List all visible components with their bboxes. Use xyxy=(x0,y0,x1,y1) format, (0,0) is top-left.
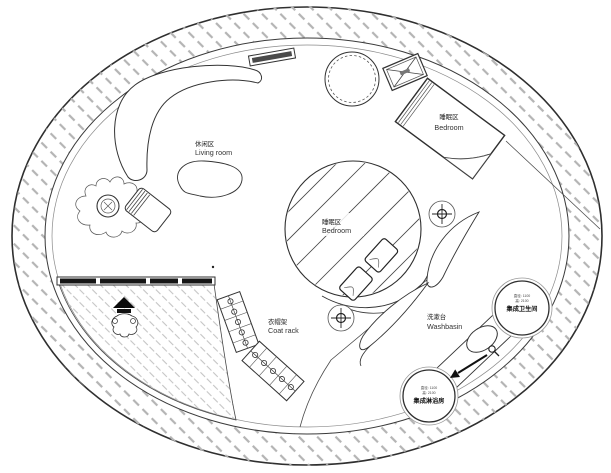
stray-dot xyxy=(212,266,214,268)
bedroom-center-label-zh: 睡眠区 xyxy=(322,218,342,226)
living-room-label-zh: 休闲区 xyxy=(195,139,215,148)
floor-plan-canvas: 休闲区 Living room 睡眠区 Bedroom xyxy=(0,0,611,473)
floor-plan-drawing: 休闲区 Living room 睡眠区 Bedroom xyxy=(0,0,611,473)
column-symbol-icon xyxy=(429,201,455,227)
bedroom-upper-label-zh: 睡眠区 xyxy=(439,113,459,121)
round-rug xyxy=(325,52,379,106)
column-symbol-icon xyxy=(328,305,354,331)
shower-pod-dim2: 高: 2100 xyxy=(422,390,435,395)
washbasin-label-zh: 洗漱台 xyxy=(427,312,446,321)
coat-rack-label-en: Coat rack xyxy=(268,326,299,335)
living-room-label-en: Living room xyxy=(195,148,232,157)
bedroom-center-label-en: Bedroom xyxy=(322,226,351,235)
bathroom-pod-name: 集成卫生间 xyxy=(506,305,538,313)
bathroom-pod: 直径: 1100 高: 2100 集成卫生间 xyxy=(492,278,552,338)
shower-pod-dim1: 直径: 1100 xyxy=(421,385,438,390)
bedroom-upper-label-en: Bedroom xyxy=(434,123,463,132)
straight-wall xyxy=(57,277,215,285)
bathroom-pod-dim2: 高: 2100 xyxy=(515,298,528,303)
bathroom-pod-dim1: 直径: 1100 xyxy=(514,293,531,298)
shower-pod-name: 集成淋浴房 xyxy=(413,397,445,405)
washbasin-label-en: Washbasin xyxy=(427,322,462,331)
coat-rack-label-zh: 衣帽架 xyxy=(268,317,288,326)
coffee-table xyxy=(177,161,242,197)
shower-pod: 直径: 1100 高: 2100 集成淋浴房 xyxy=(400,367,458,425)
